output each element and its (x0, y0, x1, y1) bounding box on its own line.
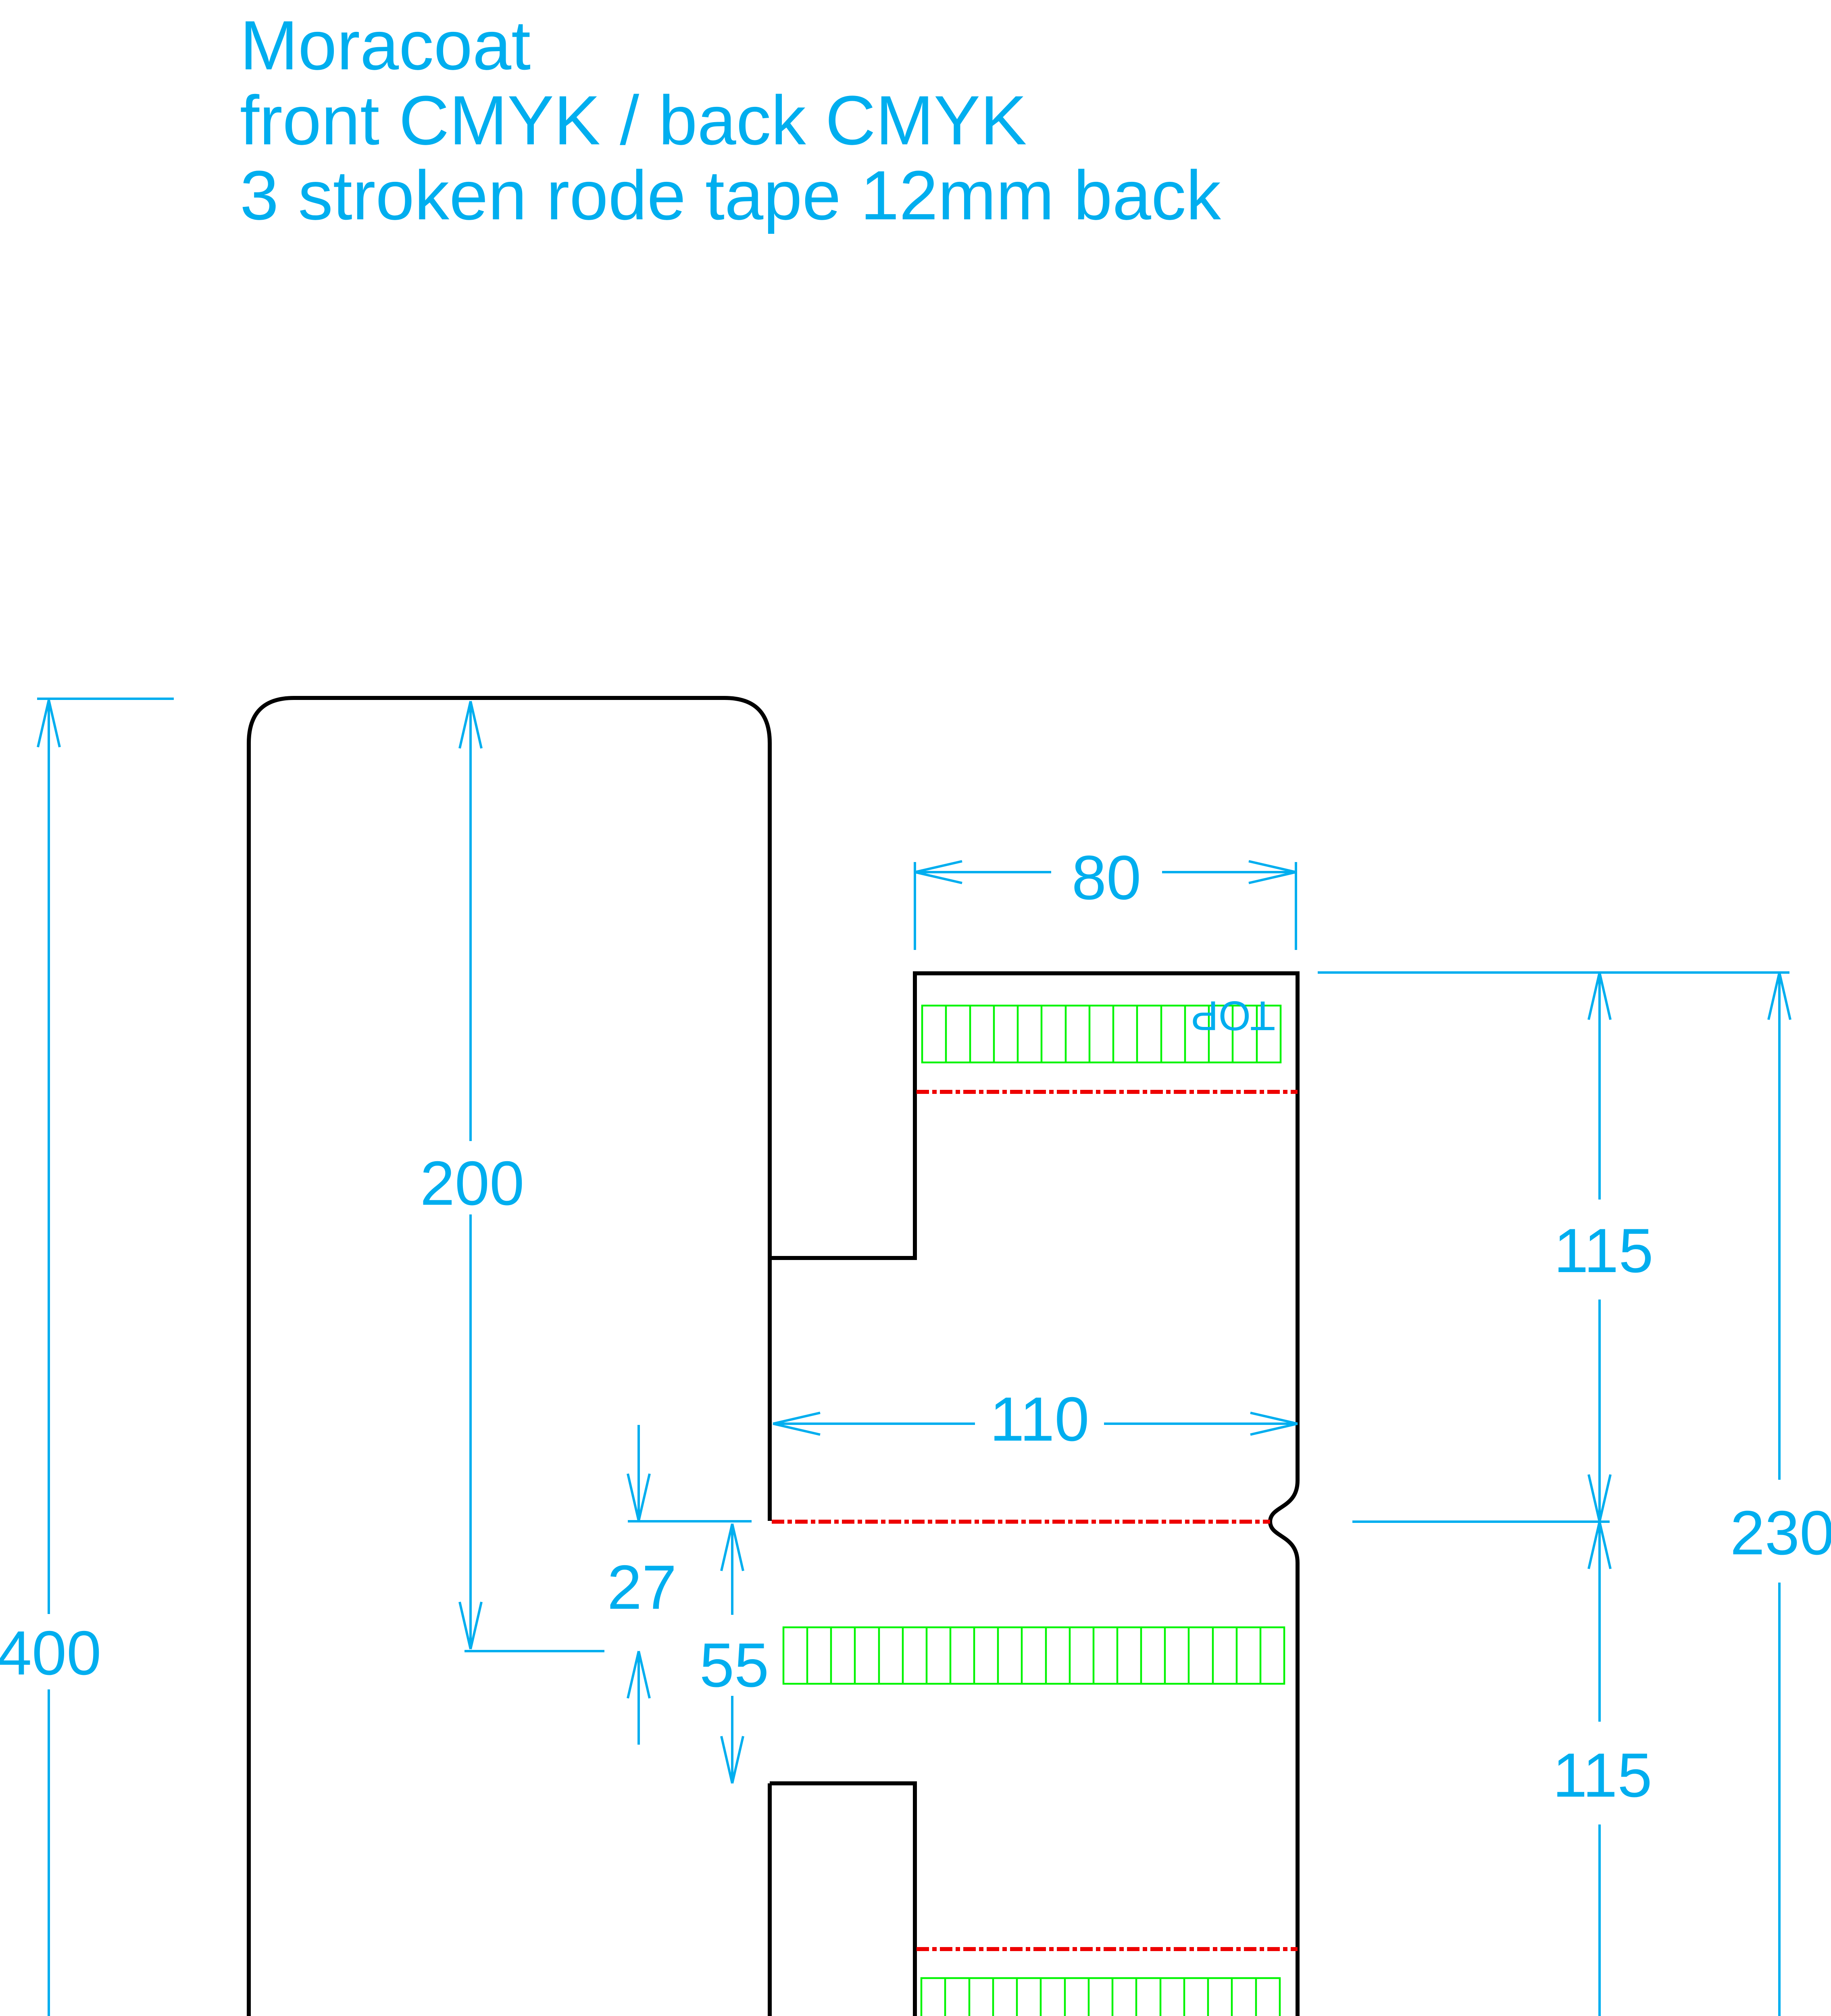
svg-text:200: 200 (420, 1148, 525, 1218)
svg-text:27: 27 (607, 1552, 677, 1622)
svg-text:230: 230 (1730, 1498, 1831, 1568)
svg-text:TOP: TOP (1191, 2008, 1275, 2016)
svg-text:115: 115 (1552, 1740, 1652, 1810)
svg-text:55: 55 (700, 1630, 769, 1700)
svg-text:front CMYK / back CMYK: front CMYK / back CMYK (240, 81, 1027, 159)
svg-text:400: 400 (0, 1618, 101, 1688)
svg-text:110: 110 (989, 1384, 1089, 1454)
svg-text:3 stroken rode tape 12mm back: 3 stroken rode tape 12mm back (240, 156, 1221, 234)
svg-text:80: 80 (1072, 843, 1141, 912)
svg-text:Moracoat: Moracoat (240, 6, 531, 84)
svg-text:115: 115 (1554, 1216, 1653, 1285)
svg-text:TOP: TOP (1191, 993, 1275, 1039)
